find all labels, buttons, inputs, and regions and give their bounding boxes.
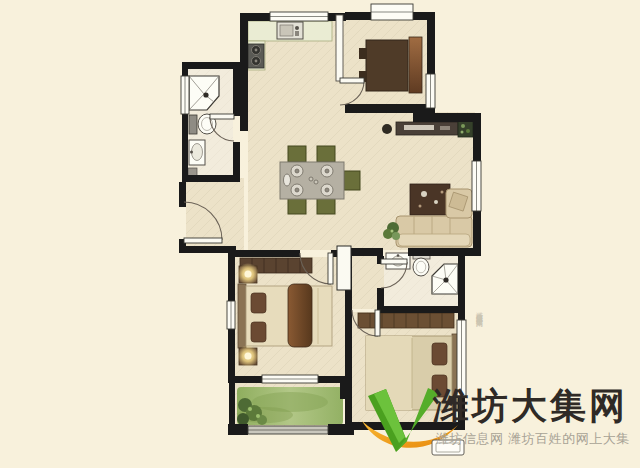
balcony-window-band — [248, 426, 328, 434]
dining-chair — [317, 146, 335, 162]
washbasin-icon — [189, 140, 205, 165]
floor-plan-image: 潍坊大集网 潍坊信息网 潍坊百姓的网上大集 潍坊信息网潍坊大集网 — [0, 0, 640, 468]
dining-chair — [317, 198, 335, 214]
bed-small — [366, 40, 408, 91]
balcony-lawn — [237, 387, 343, 425]
tv-screen — [404, 125, 434, 130]
bed-pillow — [359, 48, 367, 59]
decor-ball-icon — [382, 124, 392, 134]
dining-chair — [288, 198, 306, 214]
window — [472, 161, 481, 211]
headboard — [238, 284, 246, 348]
nightstand-lamp — [237, 345, 259, 367]
window — [270, 12, 328, 21]
window — [426, 74, 435, 108]
pillow — [251, 322, 266, 342]
kitchen-partition-wall — [336, 15, 343, 81]
dining-chair — [344, 171, 360, 190]
pillow — [251, 293, 266, 313]
quilt-roll — [409, 37, 422, 93]
toilet-icon — [413, 253, 430, 276]
partition-wall — [337, 246, 351, 290]
plant-box-icon — [458, 120, 473, 137]
area-rug — [410, 184, 450, 215]
nightstand-lamp — [237, 263, 259, 285]
console-decor — [440, 126, 450, 130]
pillow — [432, 343, 447, 365]
bay-window — [371, 4, 413, 20]
quilt-roll — [288, 284, 312, 347]
watermark-tagline-text: 潍坊信息网 潍坊百姓的网上大集 — [436, 431, 630, 447]
watermark-vertical-text: 潍坊信息网潍坊大集网 — [475, 306, 482, 316]
wardrobe — [358, 313, 454, 328]
balcony-door-window — [262, 375, 318, 383]
sofa-seat-cushions — [398, 234, 470, 246]
double-bed — [238, 284, 332, 348]
window — [181, 76, 189, 114]
stove-icon — [248, 44, 264, 68]
kitchen-sink-icon — [277, 22, 303, 39]
dining-chair — [288, 146, 306, 162]
window — [227, 301, 235, 329]
watermark-brand-text: 潍坊大集网 — [433, 388, 628, 424]
